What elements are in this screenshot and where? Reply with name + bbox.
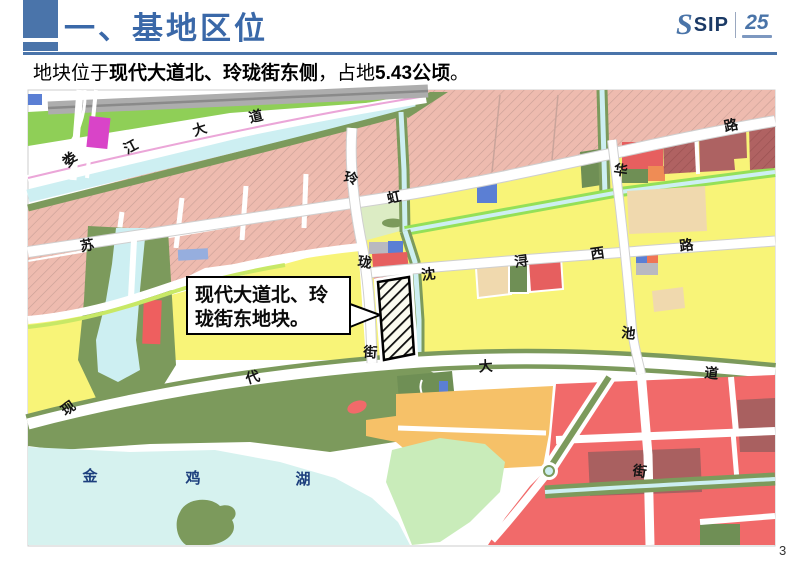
- road-label-shenxun-2: 浔: [513, 252, 529, 270]
- road-label-suhong-1: 苏: [79, 236, 96, 254]
- callout-line1: 现代大道北、玲: [195, 283, 329, 306]
- lake-label-char1: 金: [81, 467, 98, 485]
- road-label-shenxun-1: 沈: [420, 265, 436, 283]
- road-label-linglong-3: 街: [362, 343, 378, 360]
- road-label-xiandai-4: 道: [704, 364, 720, 381]
- site-parcel: [378, 277, 414, 360]
- road-label-xiandai-3: 大: [478, 358, 493, 375]
- road-label-huachi-2: 池: [621, 324, 637, 341]
- lake-label-char3: 湖: [295, 471, 310, 488]
- road-label-linglong-2: 珑: [357, 253, 373, 271]
- zoning-map: 现代大道北、玲 珑街东地块。 娄 江 大 道 苏 虹 路 玲 珑 街 华 池 街…: [0, 0, 800, 565]
- slide: 一、基地区位 S SIP 25 地块位于现代大道北、玲珑街东侧，占地5.43公顷…: [0, 0, 800, 565]
- road-label-shenxun-3: 西: [589, 244, 605, 262]
- callout-line2: 珑街东地块。: [195, 307, 309, 330]
- road-label-huachi-1: 华: [613, 161, 629, 179]
- page-number: 3: [779, 543, 786, 558]
- road-label-huachi-3: 街: [631, 462, 648, 480]
- lake-label-char2: 鸡: [184, 469, 200, 487]
